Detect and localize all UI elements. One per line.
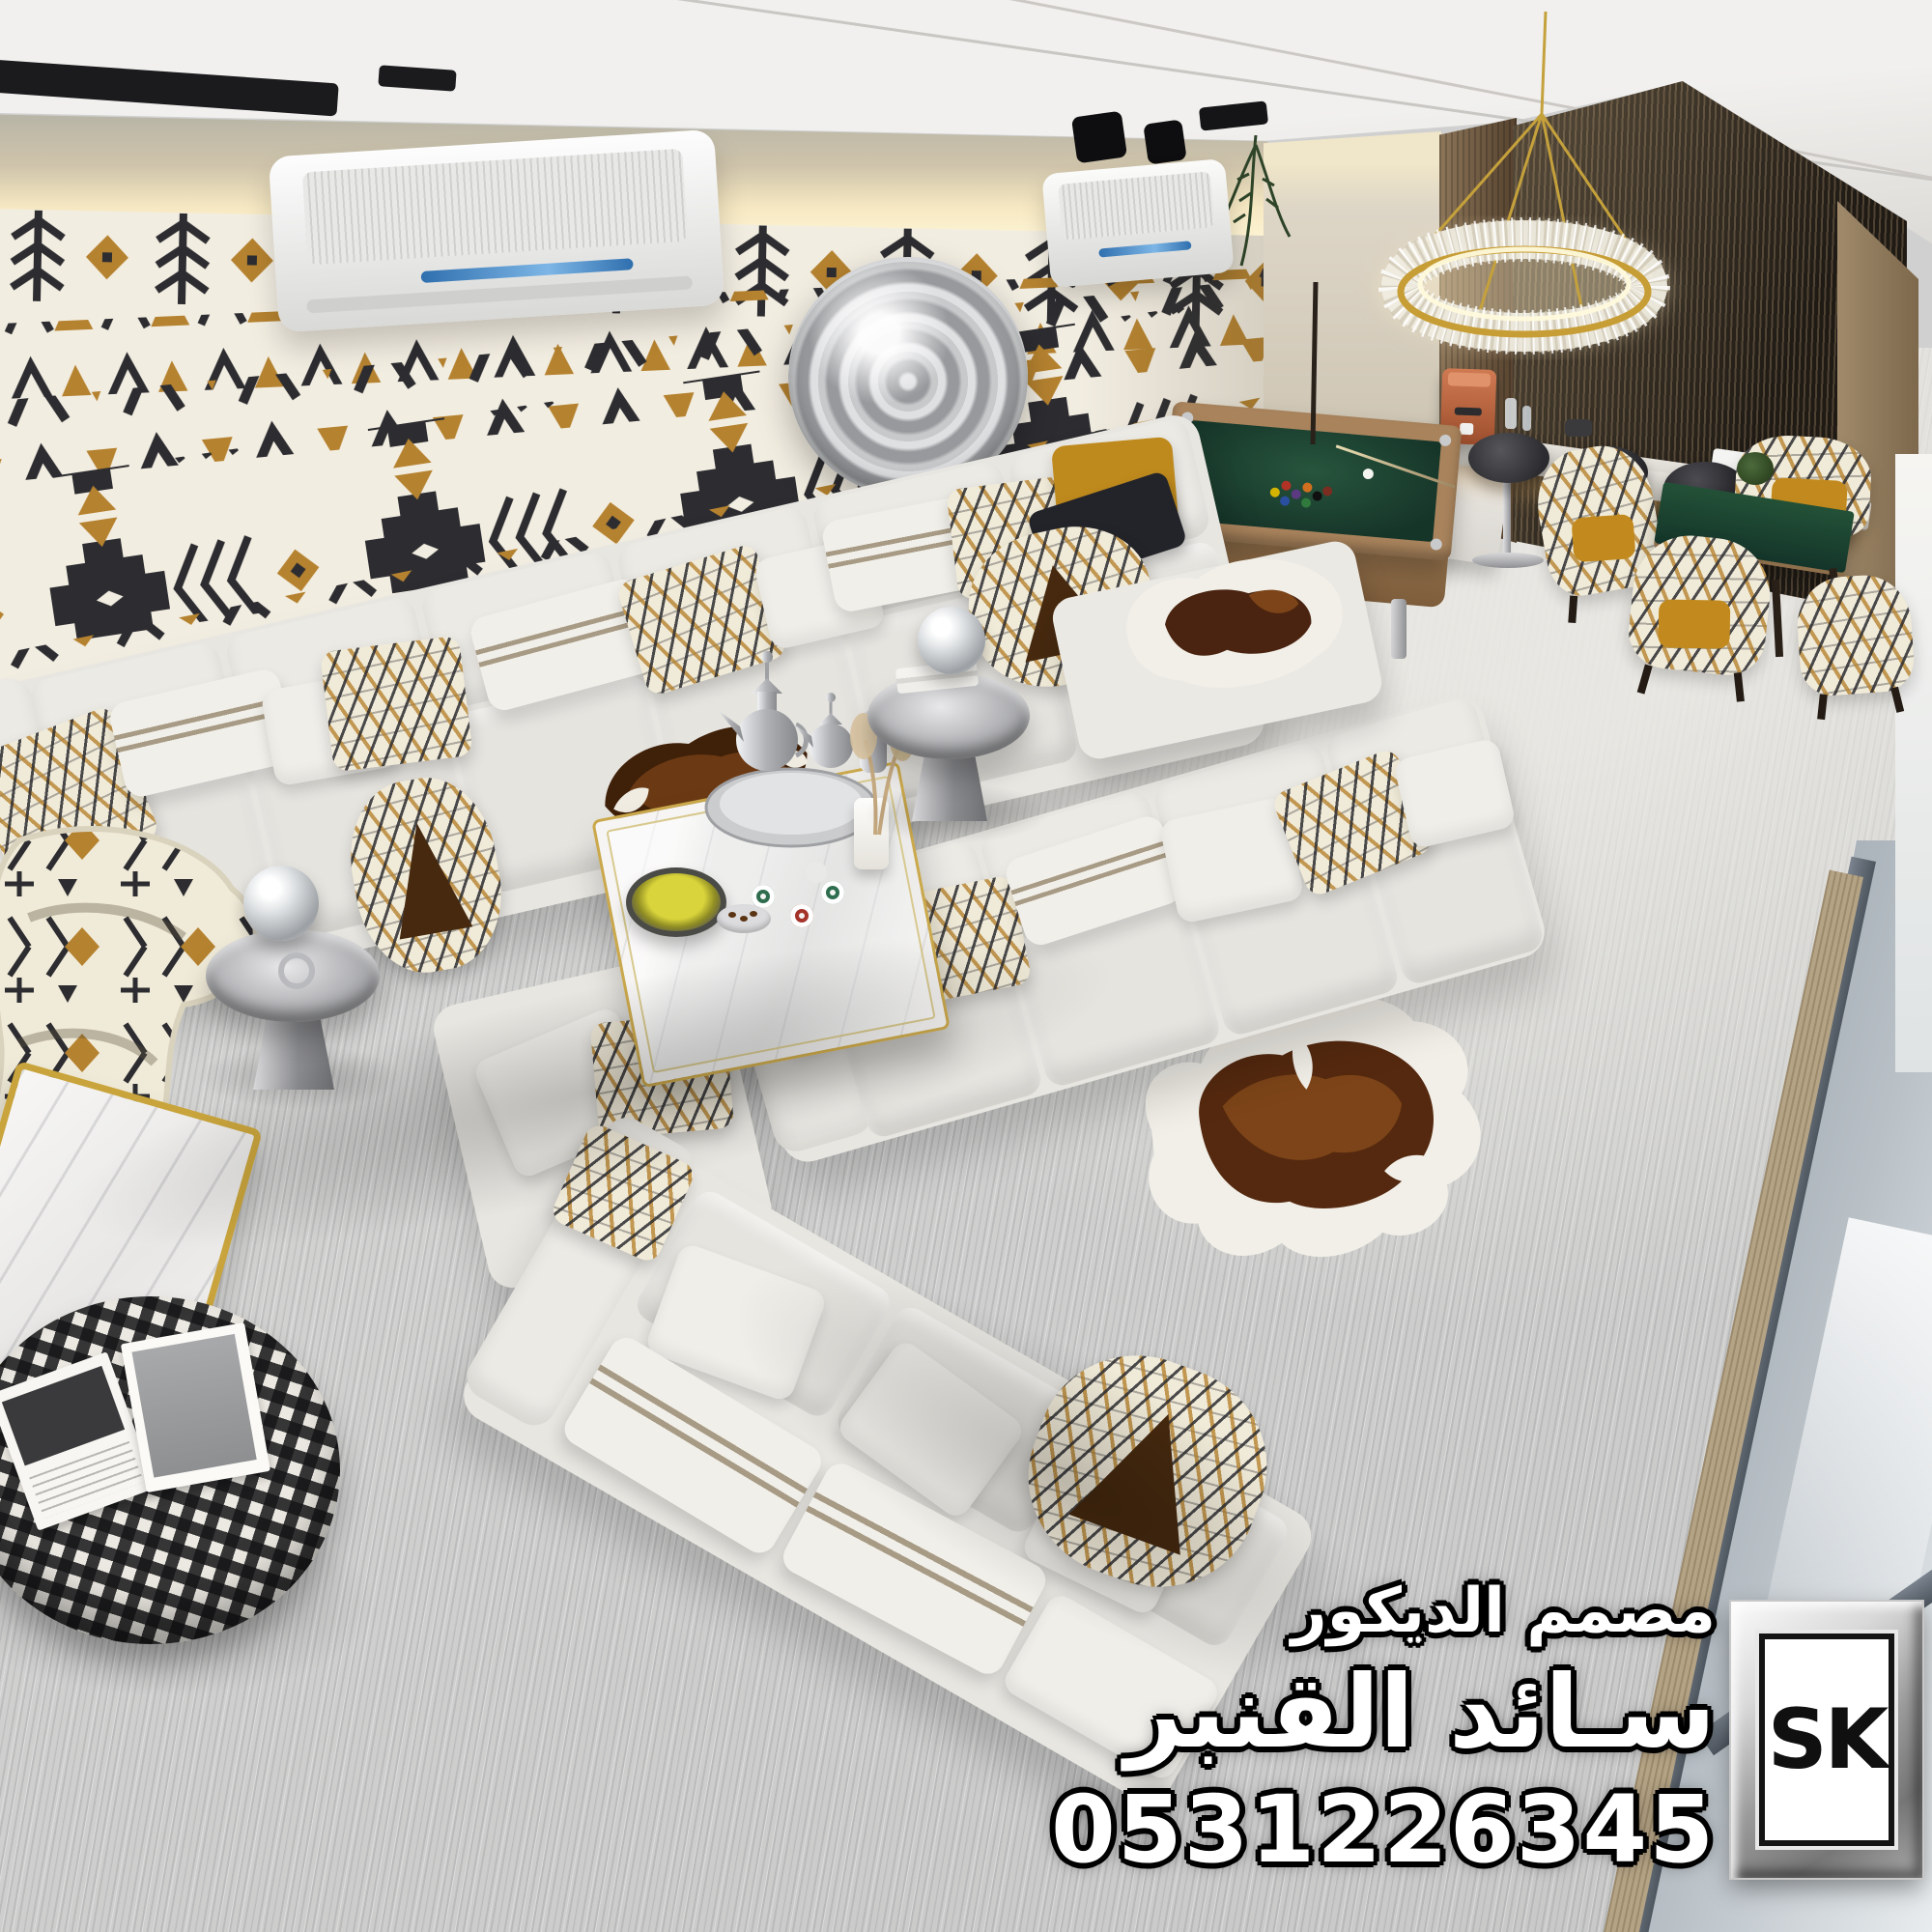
yellow-bowl (626, 867, 726, 937)
corner-pocket (1430, 538, 1442, 551)
armchair (1623, 530, 1783, 699)
crystal-ring-chandelier (1341, 6, 1727, 392)
pillow-tribal (320, 636, 473, 773)
ac-unit-left (269, 129, 725, 333)
magazine-page (121, 1322, 270, 1492)
ac-vent-grill (302, 149, 688, 266)
watermark-phone: 0531226345 (1051, 1783, 1716, 1876)
sk-logo-letters: SK (1768, 1691, 1887, 1788)
dates-plate (717, 904, 771, 933)
majlis-room-render: مصمم الديكور سـائد القنبر 0531226345 SK (0, 0, 1932, 1932)
sk-logo-badge: SK (1731, 1602, 1922, 1878)
ac-vent-grill (1058, 171, 1214, 241)
ac-flap (306, 275, 693, 313)
ring-trinket (278, 952, 315, 989)
glass-sphere (243, 866, 319, 941)
ac-display (420, 258, 633, 283)
corner-pocket (1439, 434, 1452, 446)
bar-stool-base (1472, 553, 1544, 568)
sk-logo-text: SK (1759, 1634, 1894, 1846)
bar-bottle (1522, 406, 1531, 431)
armchair-back (1794, 572, 1916, 697)
table-plant (1737, 452, 1774, 485)
bar-kettle (1565, 419, 1592, 437)
machine-top (1448, 372, 1491, 387)
cue-stick (1336, 444, 1456, 488)
mustard-pillow (1658, 599, 1730, 648)
glass-sphere (918, 607, 985, 674)
armchair (1794, 572, 1922, 715)
window-sliver (1895, 454, 1932, 1072)
cue-ball (1362, 469, 1374, 480)
mustard-pillow (1571, 514, 1635, 562)
ac-display (1098, 241, 1191, 257)
ac-unit-right (1041, 158, 1235, 288)
spotlight (1143, 119, 1186, 164)
watermark-designer-name: سـائد القنبر (1125, 1662, 1716, 1762)
watermark-designer-title: مصمم الديكور (1292, 1580, 1716, 1642)
billiard-balls (1268, 477, 1333, 515)
bar-bottle (1505, 398, 1517, 429)
bar-stool-pole (1503, 475, 1511, 560)
spotlight (1071, 111, 1127, 164)
pool-table-leg (1391, 599, 1406, 659)
